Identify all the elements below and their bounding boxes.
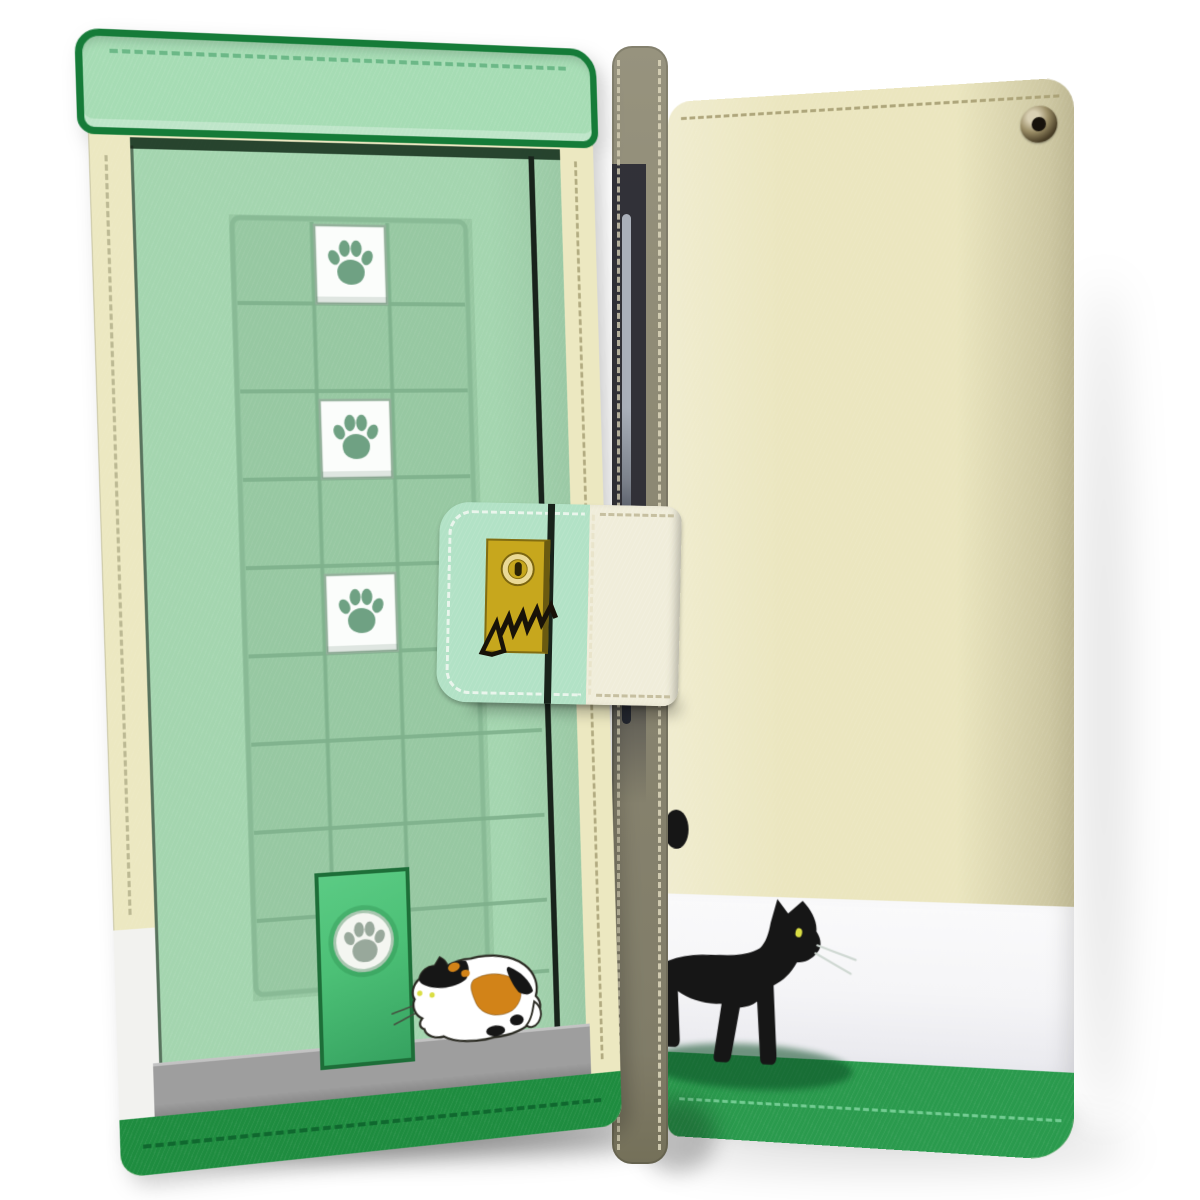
paw-print-square [320, 400, 393, 479]
phone-case-product-photo [0, 0, 1200, 1200]
cat-door-paw-circle [332, 908, 395, 975]
black-cat-whiskers [815, 945, 855, 974]
back-green-stitch-line [679, 1097, 1061, 1122]
magnetic-clasp-strap [436, 501, 682, 706]
eyelet-grommet-icon [1020, 105, 1057, 144]
keyhole-slot [515, 562, 522, 576]
paw-print-square [325, 573, 398, 653]
black-cat-tail-tip [668, 809, 689, 849]
back-top-stitch-line [681, 94, 1059, 120]
eyelet-hole [1032, 117, 1046, 132]
door-left-edge-line [130, 145, 162, 1062]
black-cat [668, 883, 864, 1096]
wall-shadow-right [1080, 280, 1128, 1120]
paw-print-icon [343, 919, 387, 964]
clasp-cream-section [586, 505, 682, 707]
front-left-stitch-line [104, 155, 131, 915]
gold-lock-plate [484, 538, 550, 653]
cat-scratch-icon [472, 596, 565, 662]
black-cat-body [668, 895, 821, 1068]
calico-cat [388, 936, 564, 1063]
back-cover-panel [668, 77, 1074, 1161]
flap-stitch-line [109, 49, 565, 71]
top-flap [74, 28, 598, 149]
keyhole-icon [502, 554, 533, 585]
paw-print-square [314, 225, 387, 304]
